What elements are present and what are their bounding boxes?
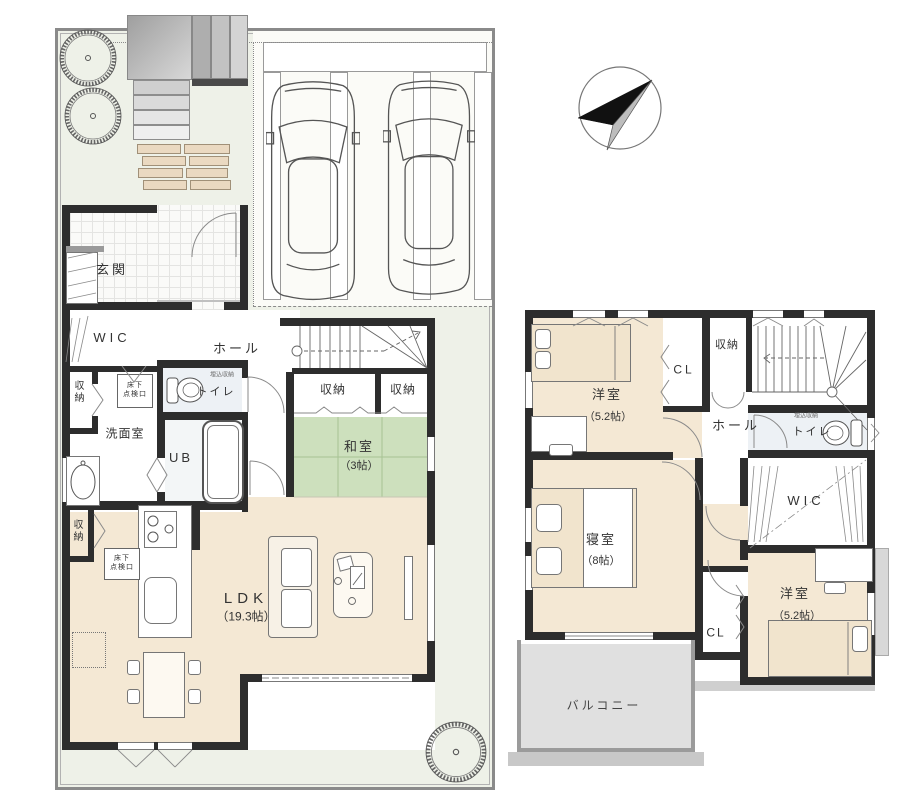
- wall: [62, 428, 98, 434]
- wall: [62, 556, 94, 562]
- balcony-wall: [517, 640, 521, 752]
- room-label-bedroom1-size: （5.2帖）: [584, 411, 632, 423]
- room-label-wic2: WIC: [787, 494, 824, 508]
- car-icon: [266, 76, 360, 302]
- wall: [62, 366, 160, 372]
- roof-strip: [875, 548, 889, 656]
- window: [753, 310, 783, 318]
- approach-step: [133, 80, 190, 95]
- garden-plank: [190, 180, 231, 190]
- car-icon: [383, 70, 475, 302]
- wall: [695, 652, 748, 660]
- compass-icon: [577, 65, 667, 155]
- sofa-cushion: [281, 548, 312, 587]
- wall: [525, 452, 673, 460]
- chair: [549, 444, 573, 456]
- parking-dotted-line: [253, 42, 254, 306]
- garden-plank: [143, 180, 187, 190]
- wall: [88, 510, 94, 558]
- window: [427, 545, 435, 641]
- room-label-storage-a: 収納: [72, 380, 82, 404]
- room-label-storage2f: 収納: [715, 339, 739, 351]
- parking-dashed-line: [253, 306, 492, 307]
- wall: [157, 360, 248, 368]
- room-label-cl2: CL: [706, 626, 725, 639]
- balcony-floor: [521, 644, 691, 748]
- room-washitsu-floor: [294, 417, 427, 497]
- sofa-cushion: [281, 589, 312, 628]
- floor-hatch-box: 床下 点検口: [117, 374, 153, 408]
- approach-step: [133, 125, 190, 140]
- room-label-ldk-size: （19.3帖）: [216, 610, 275, 623]
- room-label-balcony: バルコニー: [567, 699, 642, 712]
- wall: [746, 310, 752, 392]
- parking-front-strip: [263, 42, 487, 72]
- wall: [157, 412, 165, 458]
- tv-board: [404, 556, 413, 620]
- pillow: [535, 351, 551, 369]
- garden-plank: [184, 144, 230, 154]
- wall: [240, 674, 248, 750]
- room-label-toilet2: トイレ: [793, 426, 832, 438]
- wall: [412, 674, 435, 682]
- wall: [157, 412, 248, 420]
- tree-icon: [59, 29, 117, 87]
- room-label-storage-b: 収納: [71, 519, 81, 543]
- room-label-storage-c: 収納: [320, 383, 346, 396]
- room-label-toilet1-note: 埋込収納: [210, 373, 234, 380]
- garden-plank: [138, 168, 183, 178]
- room-label-washitsu-size: （3帖）: [339, 460, 378, 472]
- garden-plank: [142, 156, 186, 166]
- stove: [144, 511, 177, 548]
- hall2-ext-floor: [703, 504, 748, 572]
- pillow: [535, 329, 551, 349]
- pillow: [536, 504, 562, 532]
- room-label-master: 寝室: [586, 533, 616, 547]
- room-label-ub: UB: [169, 451, 193, 465]
- chair: [824, 582, 846, 594]
- floor-hatch-box: 床下 点検口: [104, 548, 140, 580]
- wall: [695, 566, 748, 572]
- roof-strip: [508, 752, 704, 766]
- wall: [192, 742, 248, 750]
- approach-step: [211, 15, 230, 79]
- pillow: [536, 547, 562, 575]
- approach-step: [230, 15, 248, 79]
- wall: [92, 372, 98, 384]
- garden-plank: [137, 144, 181, 154]
- wall: [740, 596, 748, 683]
- wall: [192, 505, 200, 550]
- garden-plank: [186, 168, 228, 178]
- approach-step: [133, 110, 190, 125]
- wall: [157, 360, 163, 418]
- room-label-hall1: ホール: [213, 342, 261, 356]
- approach-step: [192, 15, 211, 79]
- desk: [815, 548, 873, 582]
- tree-icon: [64, 87, 122, 145]
- dining-table: [143, 652, 185, 718]
- wall: [375, 372, 381, 414]
- wall: [240, 205, 248, 310]
- table-deco: [350, 566, 365, 589]
- window: [573, 310, 605, 318]
- room-label-ldk: LDK: [224, 591, 268, 608]
- window: [804, 310, 824, 318]
- wall: [280, 318, 435, 326]
- window: [867, 418, 875, 450]
- room-label-toilet1: トイレ: [197, 386, 236, 398]
- pillow: [852, 626, 868, 652]
- wall: [224, 302, 248, 310]
- window-terrace: [262, 674, 412, 682]
- wall: [748, 405, 867, 413]
- floor-hatch-label: 床下: [127, 382, 143, 391]
- parking-stall-line: [474, 72, 492, 300]
- wall: [740, 677, 875, 685]
- room-label-wic1: WIC: [93, 331, 130, 345]
- window: [118, 742, 154, 750]
- room-label-bedroom1: 洋室: [592, 388, 622, 402]
- tree-icon: [425, 721, 487, 783]
- wall: [748, 450, 867, 458]
- bathtub-inner: [207, 425, 239, 499]
- wall: [62, 742, 118, 750]
- wall: [62, 205, 157, 213]
- room-label-bedroom2: 洋室: [780, 587, 810, 601]
- dining-chair: [127, 689, 140, 704]
- window: [158, 742, 192, 750]
- dining-chair: [188, 660, 201, 675]
- shoe-cabinet: [66, 252, 98, 304]
- floor-hatch-label: 床下: [114, 555, 130, 564]
- room-label-master-size: （8帖）: [581, 555, 620, 567]
- room-label-washitsu: 和室: [344, 440, 374, 454]
- shoe-cabinet-top: [66, 246, 104, 252]
- room-label-hall2: ホール: [712, 419, 760, 433]
- room-label-bedroom2-size: （5.2帖）: [773, 610, 821, 622]
- wall: [248, 674, 262, 682]
- wall: [740, 553, 748, 560]
- window: [427, 437, 435, 471]
- wall: [702, 310, 710, 412]
- wall: [286, 372, 294, 497]
- washbasin: [66, 456, 100, 506]
- room-label-toilet2-note: 埋込収納: [794, 414, 818, 421]
- approach-step-edge: [192, 79, 248, 86]
- room-label-storage-d: 収納: [390, 383, 416, 396]
- garden-plank: [189, 156, 229, 166]
- approach-step-block: [127, 15, 192, 80]
- dining-chair: [188, 689, 201, 704]
- window-balcony-door: [565, 632, 653, 640]
- window: [618, 310, 648, 318]
- room-label-cl1: CL: [673, 363, 694, 376]
- wall: [695, 458, 703, 660]
- floor-plan: 床下 点検口 床下 点検口: [0, 0, 900, 810]
- wall: [242, 360, 248, 378]
- wall: [740, 458, 748, 506]
- approach-step: [133, 95, 190, 110]
- kitchen-sink: [144, 577, 177, 624]
- floor-hatch-label: 点検口: [110, 564, 134, 573]
- room-label-genkan: 玄関: [96, 263, 128, 277]
- floor-hatch-label: 点検口: [123, 391, 147, 400]
- refrigerator-space: [72, 632, 106, 668]
- wall: [292, 368, 427, 374]
- room-label-washroom: 洗面室: [105, 427, 144, 440]
- dining-chair: [127, 660, 140, 675]
